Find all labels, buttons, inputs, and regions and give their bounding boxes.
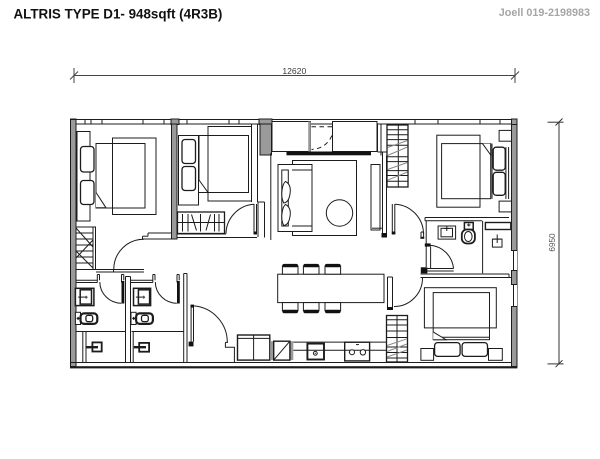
svg-text:ALTRIS TYPE D1- 948sqft (4R3B): ALTRIS TYPE D1- 948sqft (4R3B) bbox=[14, 7, 223, 22]
svg-text:Joell 019-2198983: Joell 019-2198983 bbox=[499, 7, 590, 19]
svg-text:6950: 6950 bbox=[548, 233, 557, 252]
svg-text:12620: 12620 bbox=[282, 66, 306, 76]
